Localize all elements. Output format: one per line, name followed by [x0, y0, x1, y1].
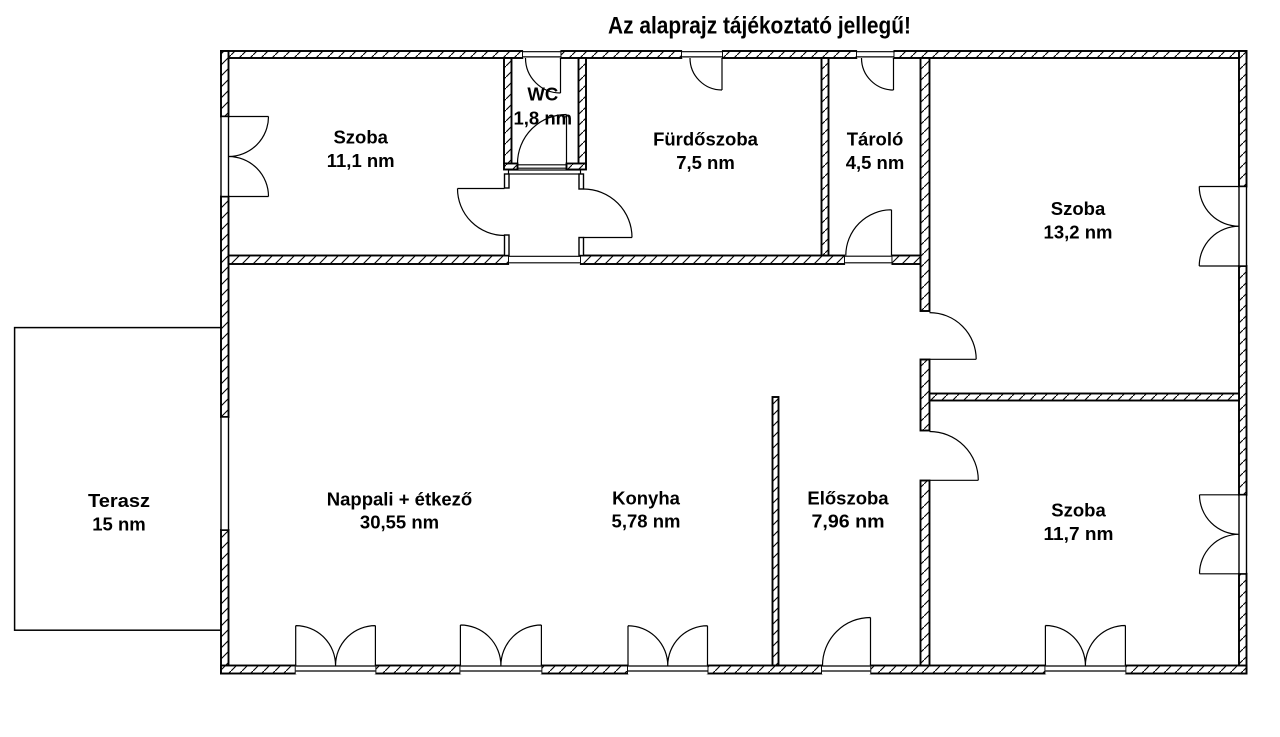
svg-text:7,5 nm: 7,5 nm — [676, 152, 735, 173]
svg-text:11,1 nm: 11,1 nm — [327, 150, 395, 171]
svg-text:Konyha: Konyha — [612, 488, 681, 509]
svg-text:Az alaprajz tájékoztató jelleg: Az alaprajz tájékoztató jellegű! — [608, 13, 911, 40]
svg-text:13,2 nm: 13,2 nm — [1044, 222, 1113, 243]
svg-text:4,5 nm: 4,5 nm — [846, 152, 905, 173]
svg-text:Terasz: Terasz — [88, 490, 150, 511]
svg-text:1,8 nm: 1,8 nm — [513, 108, 572, 129]
svg-text:Fürdőszoba: Fürdőszoba — [653, 129, 759, 150]
svg-text:WC: WC — [527, 84, 558, 105]
svg-text:Szoba: Szoba — [1051, 500, 1106, 521]
svg-text:7,96 nm: 7,96 nm — [812, 511, 885, 532]
svg-text:5,78 nm: 5,78 nm — [612, 511, 681, 532]
svg-text:15 nm: 15 nm — [92, 514, 145, 535]
svg-text:Szoba: Szoba — [333, 127, 388, 148]
svg-text:Előszoba: Előszoba — [807, 488, 889, 509]
svg-text:Szoba: Szoba — [1051, 198, 1106, 219]
svg-text:Nappali + étkező: Nappali + étkező — [327, 489, 472, 510]
svg-text:Tároló: Tároló — [847, 129, 904, 150]
svg-text:30,55 nm: 30,55 nm — [360, 511, 439, 532]
svg-text:11,7 nm: 11,7 nm — [1044, 523, 1114, 544]
